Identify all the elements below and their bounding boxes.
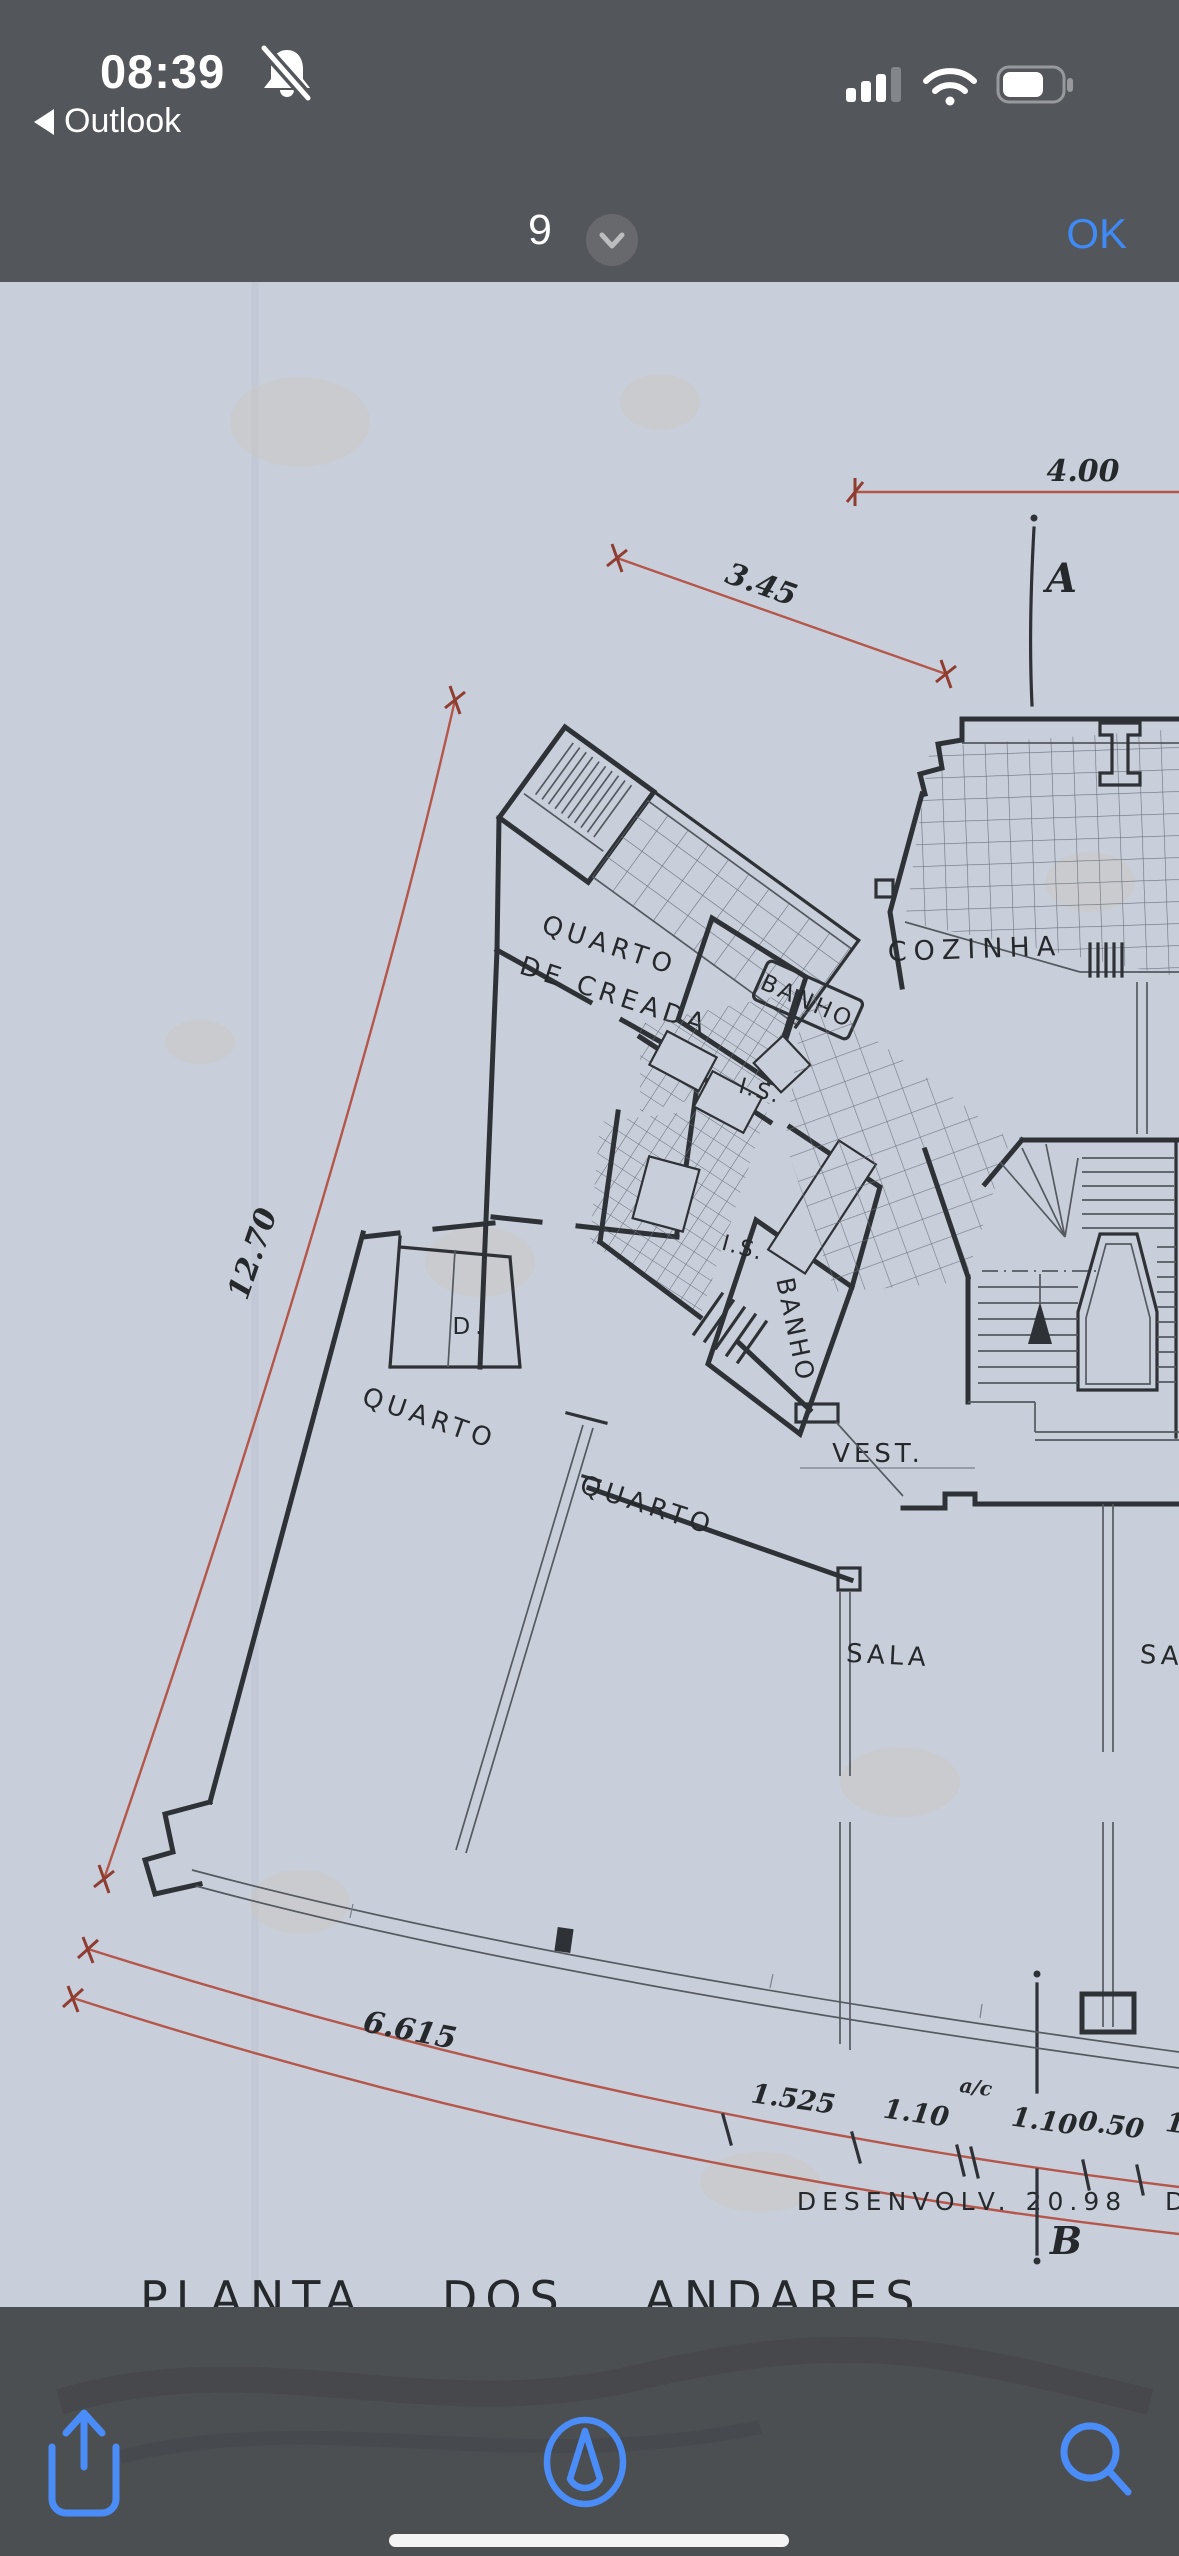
status-time: 08:39 (100, 44, 225, 99)
label-cozinha: COZINHA (887, 931, 1063, 968)
back-app-label: Outlook (64, 102, 181, 141)
iphone-screen: 08:39 Outlook (0, 0, 1179, 2556)
status-right-icons (830, 55, 1090, 115)
back-to-outlook-button[interactable]: Outlook (34, 102, 181, 141)
dim-desenvolv: DESENVOLV. 20.98 (797, 2187, 1127, 2216)
page-number: 9 (528, 206, 552, 255)
label-closet-d: D. (452, 1314, 487, 1340)
faint-signature (60, 2350, 1150, 2402)
home-indicator[interactable] (389, 2534, 789, 2547)
share-button[interactable] (52, 2413, 116, 2513)
battery-icon (998, 67, 1073, 102)
back-arrow-icon (34, 109, 54, 135)
page-selector-button[interactable] (586, 214, 638, 266)
signal-icon (846, 67, 901, 102)
label-sala-1: SALA (845, 1639, 930, 1673)
section-a-label: A (1042, 555, 1077, 602)
wifi-icon (926, 71, 974, 105)
floorplan-drawing: 4.00 3.45 12.70 6.615 (0, 282, 1179, 2307)
label-sala-2: SA (1139, 1640, 1179, 1672)
markup-compass-button[interactable] (547, 2420, 623, 2504)
section-b-label: B (1049, 2218, 1082, 2263)
status-and-nav-bar: 08:39 Outlook (0, 0, 1179, 282)
floorplan-document-view[interactable]: 4.00 3.45 12.70 6.615 (0, 282, 1179, 2307)
dim-desenvolv-partial: D (1165, 2187, 1179, 2216)
chevron-down-icon (586, 214, 638, 266)
ok-button[interactable]: OK (1066, 210, 1127, 258)
plan-title: PLANTA DOS ANDARES (140, 2271, 923, 2307)
dim-ac-note: a/c (958, 2073, 993, 2101)
search-button[interactable] (1064, 2426, 1128, 2492)
dim-4-00: 4.00 (1046, 454, 1119, 489)
label-vest: VEST. (832, 1439, 924, 1469)
bottom-toolbar (0, 2307, 1179, 2556)
notifications-silenced-icon (252, 38, 322, 108)
